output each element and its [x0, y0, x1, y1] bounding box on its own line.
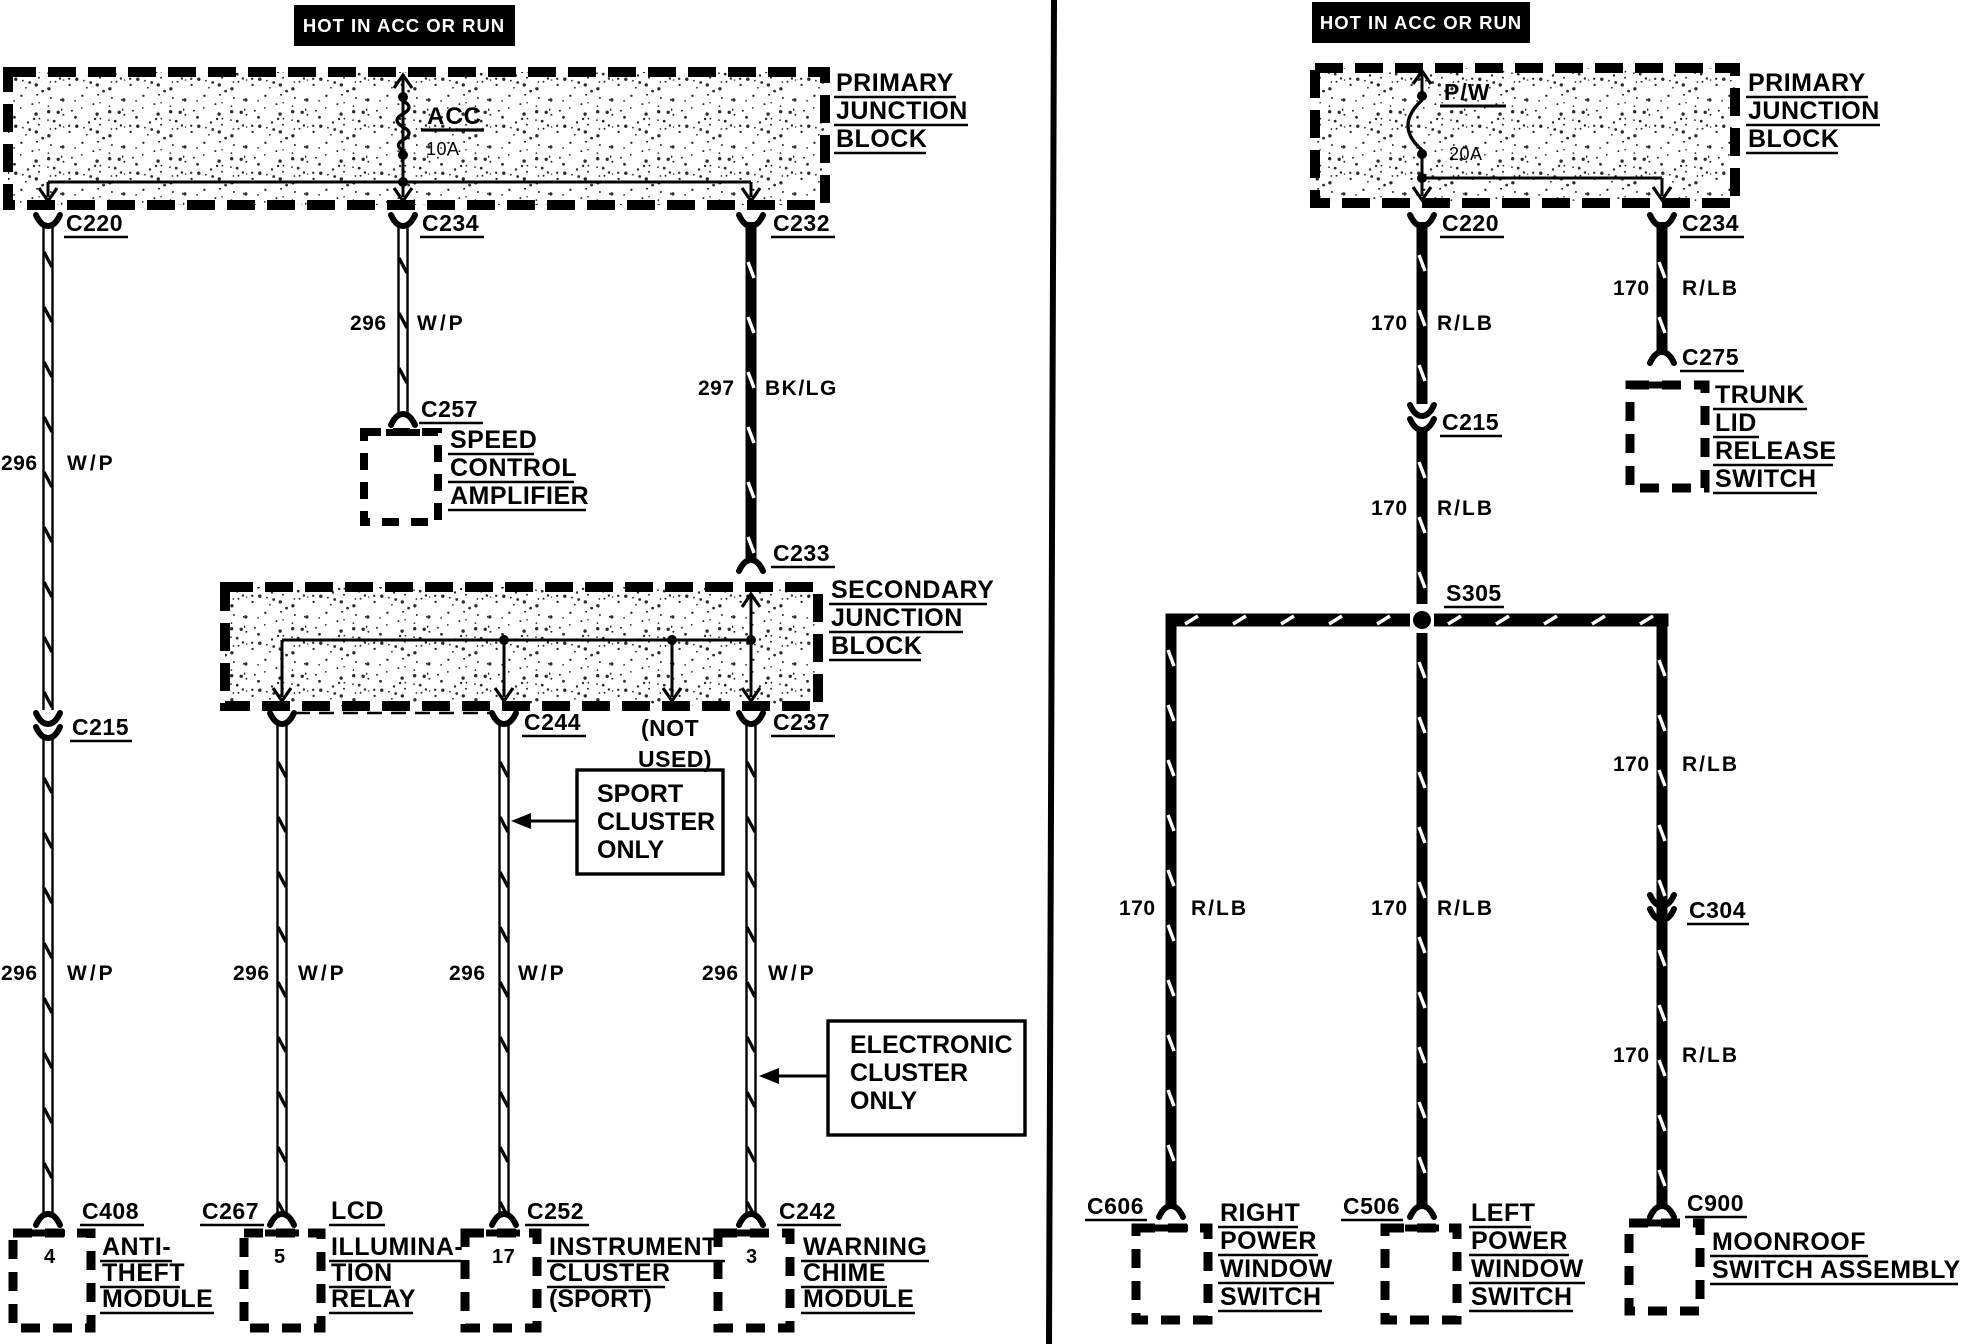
svg-text:170: 170	[1613, 1044, 1650, 1067]
svg-text:C232: C232	[773, 210, 830, 236]
svg-text:297: 297	[698, 377, 735, 400]
svg-text:LCD: LCD	[331, 1197, 384, 1225]
svg-text:BK/LG: BK/LG	[765, 377, 838, 400]
svg-text:R/LB: R/LB	[1437, 312, 1494, 335]
svg-text:C215: C215	[72, 714, 129, 740]
svg-text:C304: C304	[1689, 897, 1746, 923]
svg-text:C506: C506	[1343, 1193, 1400, 1219]
svg-text:SWITCH: SWITCH	[1715, 465, 1817, 493]
svg-text:296: 296	[1, 452, 38, 475]
svg-text:W/P: W/P	[768, 962, 817, 985]
svg-text:(NOT: (NOT	[641, 715, 699, 741]
svg-text:THEFT: THEFT	[102, 1259, 185, 1287]
svg-text:296: 296	[449, 962, 486, 985]
svg-text:SWITCH ASSEMBLY: SWITCH ASSEMBLY	[1712, 1256, 1961, 1284]
svg-text:R/LB: R/LB	[1682, 277, 1739, 300]
svg-text:SPEED: SPEED	[450, 426, 537, 454]
svg-text:P/W: P/W	[1444, 79, 1490, 105]
svg-text:LEFT: LEFT	[1471, 1199, 1536, 1227]
svg-text:POWER: POWER	[1220, 1227, 1317, 1255]
svg-text:PRIMARY: PRIMARY	[1748, 69, 1866, 97]
svg-text:W/P: W/P	[67, 452, 116, 475]
svg-text:C257: C257	[421, 396, 478, 422]
svg-text:WINDOW: WINDOW	[1471, 1255, 1584, 1283]
svg-text:C234: C234	[422, 210, 479, 236]
svg-text:S305: S305	[1446, 580, 1502, 606]
svg-text:170: 170	[1371, 312, 1408, 335]
svg-text:WINDOW: WINDOW	[1220, 1255, 1333, 1283]
svg-text:C233: C233	[773, 540, 830, 566]
svg-text:R/LB: R/LB	[1437, 897, 1494, 920]
svg-text:USED): USED)	[638, 746, 712, 772]
svg-text:SPORT: SPORT	[597, 780, 683, 808]
svg-text:LID: LID	[1715, 409, 1757, 437]
svg-text:296: 296	[1, 962, 38, 985]
svg-text:R/LB: R/LB	[1682, 1044, 1739, 1067]
svg-text:CLUSTER: CLUSTER	[549, 1259, 671, 1287]
svg-text:HOT IN ACC OR RUN: HOT IN ACC OR RUN	[1320, 12, 1522, 33]
svg-text:(SPORT): (SPORT)	[549, 1285, 652, 1313]
svg-text:W/P: W/P	[518, 962, 567, 985]
svg-text:ANTI-: ANTI-	[102, 1233, 171, 1261]
svg-text:3: 3	[746, 1246, 758, 1268]
svg-text:JUNCTION: JUNCTION	[831, 604, 963, 632]
svg-text:5: 5	[274, 1246, 286, 1268]
svg-text:SWITCH: SWITCH	[1220, 1283, 1322, 1311]
svg-text:C244: C244	[524, 709, 581, 735]
svg-text:C215: C215	[1442, 409, 1499, 435]
svg-text:170: 170	[1371, 897, 1408, 920]
svg-text:MODULE: MODULE	[803, 1285, 914, 1313]
svg-text:AMPLIFIER: AMPLIFIER	[450, 482, 589, 510]
svg-text:W/P: W/P	[417, 312, 466, 335]
svg-text:C237: C237	[773, 709, 830, 735]
svg-text:W/P: W/P	[298, 962, 347, 985]
svg-text:CONTROL: CONTROL	[450, 454, 577, 482]
svg-text:MOONROOF: MOONROOF	[1712, 1228, 1866, 1256]
svg-text:W/P: W/P	[67, 962, 116, 985]
svg-text:JUNCTION: JUNCTION	[1748, 97, 1880, 125]
svg-text:BLOCK: BLOCK	[831, 632, 922, 660]
svg-text:TION: TION	[331, 1259, 393, 1287]
svg-text:17: 17	[492, 1246, 515, 1268]
svg-text:BLOCK: BLOCK	[836, 125, 927, 153]
svg-text:296: 296	[702, 962, 739, 985]
svg-text:C267: C267	[202, 1198, 259, 1224]
svg-text:C275: C275	[1682, 344, 1739, 370]
svg-text:296: 296	[233, 962, 270, 985]
svg-text:170: 170	[1613, 277, 1650, 300]
svg-text:4: 4	[44, 1246, 56, 1268]
svg-text:ACC: ACC	[427, 103, 482, 130]
svg-text:296: 296	[350, 312, 387, 335]
svg-text:R/LB: R/LB	[1682, 753, 1739, 776]
svg-text:POWER: POWER	[1471, 1227, 1568, 1255]
svg-text:SECONDARY: SECONDARY	[831, 576, 994, 604]
svg-text:R/LB: R/LB	[1437, 497, 1494, 520]
svg-text:C220: C220	[1442, 210, 1499, 236]
svg-text:C234: C234	[1682, 210, 1739, 236]
svg-text:RELAY: RELAY	[331, 1285, 416, 1313]
svg-text:ONLY: ONLY	[597, 836, 664, 864]
svg-text:C900: C900	[1687, 1190, 1744, 1216]
svg-text:C242: C242	[779, 1198, 836, 1224]
svg-text:HOT IN ACC OR RUN: HOT IN ACC OR RUN	[303, 15, 505, 36]
svg-text:JUNCTION: JUNCTION	[836, 97, 968, 125]
svg-text:170: 170	[1613, 753, 1650, 776]
svg-text:WARNING: WARNING	[803, 1233, 927, 1261]
svg-text:SWITCH: SWITCH	[1471, 1283, 1573, 1311]
svg-text:C408: C408	[82, 1198, 139, 1224]
svg-text:CHIME: CHIME	[803, 1259, 886, 1287]
svg-text:MODULE: MODULE	[102, 1285, 213, 1313]
svg-text:TRUNK: TRUNK	[1715, 381, 1805, 409]
svg-text:RELEASE: RELEASE	[1715, 437, 1837, 465]
svg-text:BLOCK: BLOCK	[1748, 125, 1839, 153]
svg-text:RIGHT: RIGHT	[1220, 1199, 1300, 1227]
svg-text:ILLUMINA-: ILLUMINA-	[331, 1233, 463, 1261]
svg-text:170: 170	[1371, 497, 1408, 520]
svg-text:170: 170	[1119, 897, 1156, 920]
svg-text:PRIMARY: PRIMARY	[836, 69, 954, 97]
svg-text:ELECTRONIC: ELECTRONIC	[850, 1031, 1013, 1059]
svg-text:20A: 20A	[1449, 144, 1483, 164]
svg-text:C220: C220	[66, 210, 123, 236]
svg-text:ONLY: ONLY	[850, 1087, 917, 1115]
svg-text:R/LB: R/LB	[1191, 897, 1248, 920]
svg-text:10A: 10A	[426, 139, 460, 159]
svg-text:INSTRUMENT: INSTRUMENT	[549, 1233, 718, 1261]
svg-text:C606: C606	[1087, 1193, 1144, 1219]
svg-text:CLUSTER: CLUSTER	[597, 808, 715, 836]
svg-text:CLUSTER: CLUSTER	[850, 1059, 968, 1087]
svg-text:C252: C252	[527, 1198, 584, 1224]
